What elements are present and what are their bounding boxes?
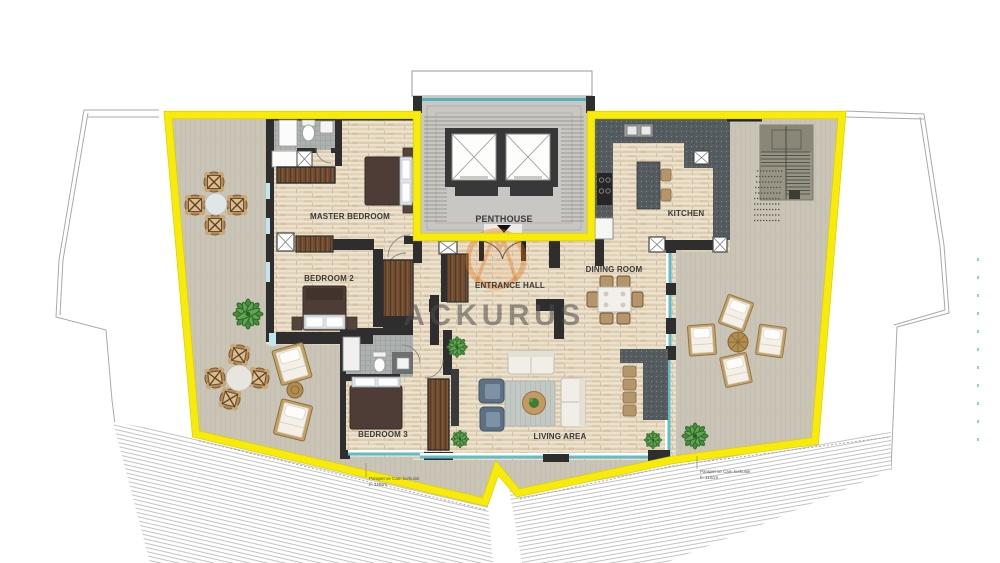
svg-text:ACKURUS: ACKURUS xyxy=(403,299,585,332)
svg-text:h: 110cm: h: 110cm xyxy=(700,475,718,480)
svg-text:Parapet ve Cam korkuluk: Parapet ve Cam korkuluk xyxy=(369,476,420,481)
svg-text:DINING ROOM: DINING ROOM xyxy=(586,265,643,274)
svg-text:LIVING AREA: LIVING AREA xyxy=(534,432,587,441)
svg-text:MASTER BEDROOM: MASTER BEDROOM xyxy=(310,212,390,221)
svg-text:PENTHOUSE: PENTHOUSE xyxy=(475,214,532,224)
svg-text:KITCHEN: KITCHEN xyxy=(668,209,705,218)
svg-text:ENTRANCE HALL: ENTRANCE HALL xyxy=(475,281,545,290)
svg-text:BEDROOM 3: BEDROOM 3 xyxy=(358,430,408,439)
svg-text:h: 110cm: h: 110cm xyxy=(369,482,387,487)
svg-text:Parapet ve Cam korkuluk: Parapet ve Cam korkuluk xyxy=(700,469,751,474)
svg-text:BEDROOM 2: BEDROOM 2 xyxy=(304,274,354,283)
